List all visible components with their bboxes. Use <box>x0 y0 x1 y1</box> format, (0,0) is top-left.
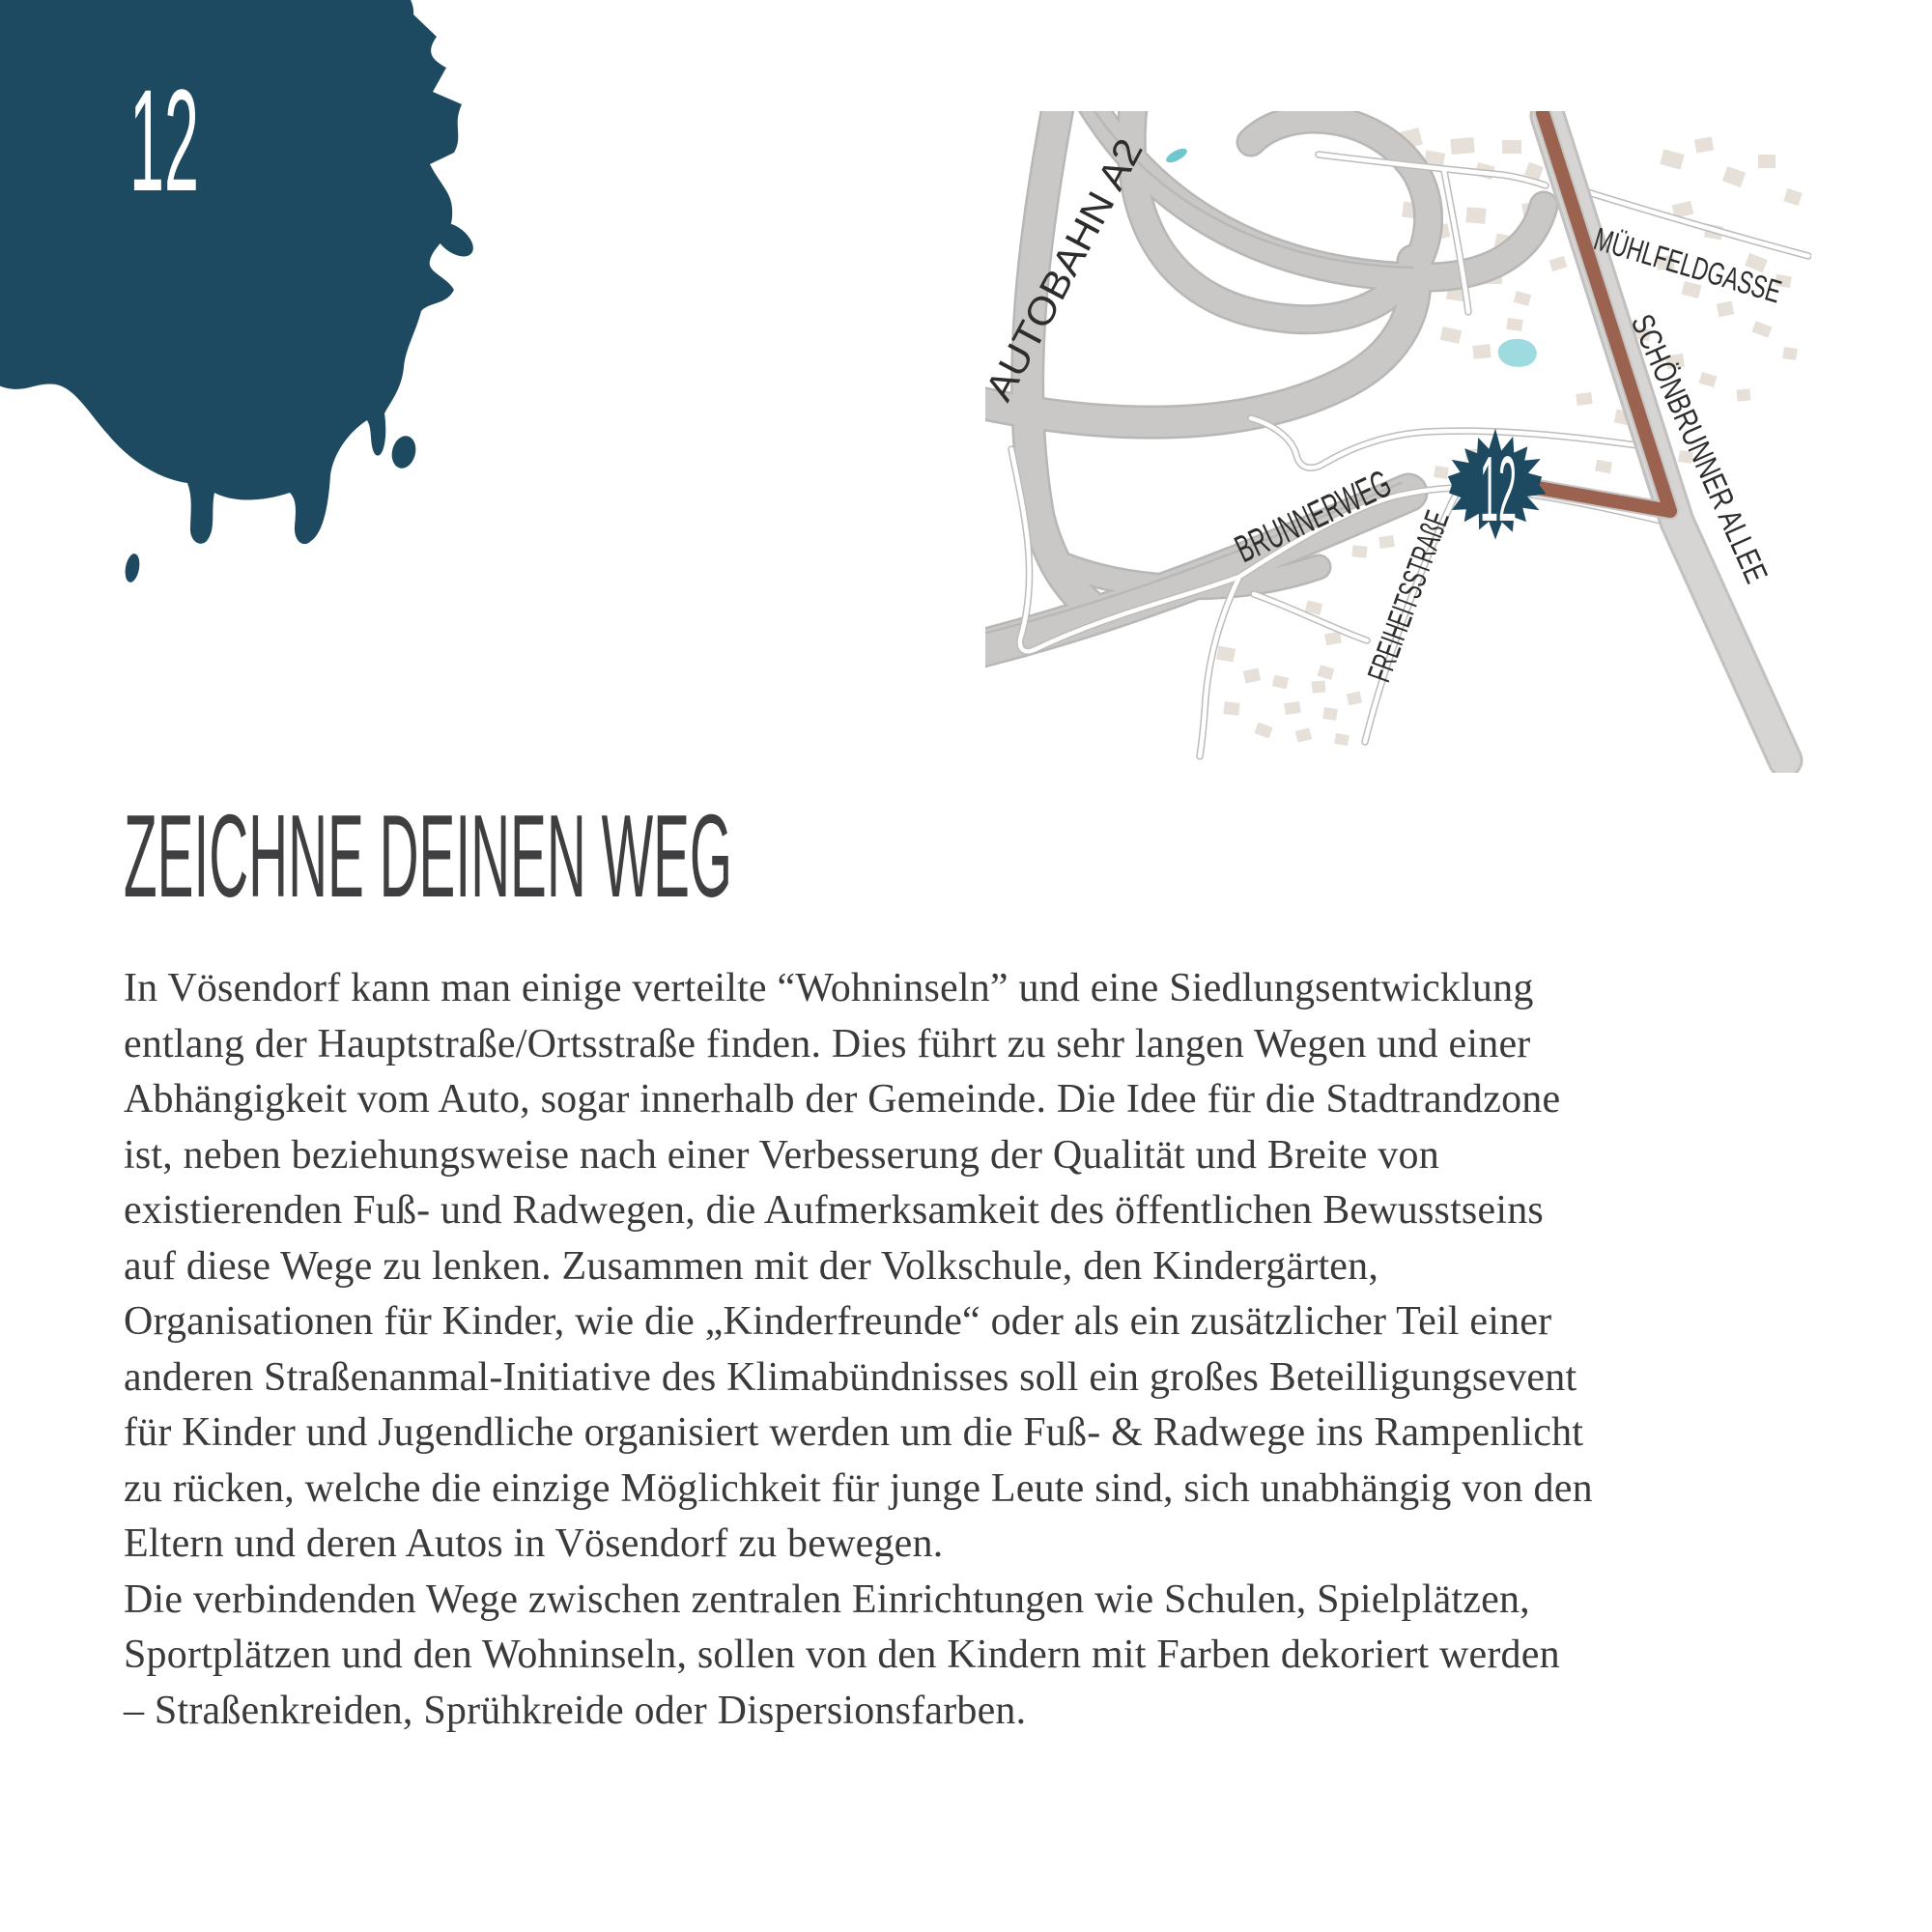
map-building <box>1595 460 1612 474</box>
page-number: 12 <box>129 59 199 221</box>
map-building <box>1502 140 1521 154</box>
map-marker: 12 <box>1448 429 1547 542</box>
map-building <box>1660 149 1684 169</box>
ink-drop-3 <box>388 434 419 471</box>
ink-drop-4 <box>124 553 142 583</box>
ink-splat-shape <box>0 0 462 544</box>
map-building <box>1295 727 1313 742</box>
map-building <box>1272 675 1289 690</box>
map-building <box>1434 466 1449 479</box>
map-building <box>1284 701 1301 715</box>
map-building <box>1717 300 1735 317</box>
map-building <box>1312 680 1326 693</box>
map-building <box>1318 665 1335 680</box>
autobahn-interchange <box>985 111 1544 652</box>
road-label-freiheitsstrasse: FREIHEITSSTRAßE <box>1361 506 1457 687</box>
brochure-page: { "page": { "number": "12", "heading": "… <box>0 0 1932 1932</box>
map-building <box>1737 388 1751 401</box>
map-building <box>1699 372 1718 387</box>
map-building <box>1465 207 1486 224</box>
body-text: In Vösendorf kann man einige verteilte “… <box>124 961 1853 1739</box>
map-building <box>1450 137 1474 155</box>
map-building <box>1514 291 1532 306</box>
map-building <box>1576 392 1593 406</box>
map-building <box>1694 137 1714 154</box>
pond <box>1498 339 1537 367</box>
map-building <box>1254 723 1272 739</box>
map-building <box>1216 646 1236 663</box>
map-building <box>1783 188 1803 206</box>
map-building <box>1351 545 1367 558</box>
map-building <box>1334 733 1350 746</box>
map-building <box>1243 668 1261 683</box>
map-building <box>1751 321 1772 337</box>
map-building <box>1378 535 1395 549</box>
map-building <box>1472 344 1491 359</box>
page-number-ink-splat: 12 <box>0 0 618 676</box>
water-sliver <box>1164 146 1189 165</box>
map-building <box>1322 707 1338 721</box>
map-building <box>1722 166 1746 187</box>
location-map: 12 AUTOBAHN A2 MÜHLFELDGASSE SCHÖNBRUNNE… <box>985 111 1811 773</box>
map-building <box>1758 155 1776 168</box>
map-building <box>1506 318 1523 331</box>
map-building <box>1223 701 1239 716</box>
map-building <box>1440 327 1462 344</box>
road-label-autobahn-a2: AUTOBAHN A2 <box>985 132 1151 409</box>
map-building <box>1782 347 1798 360</box>
map-building <box>1549 256 1568 271</box>
marker-number: 12 <box>1480 438 1517 541</box>
map-building <box>1324 632 1342 646</box>
map-building <box>1347 692 1362 706</box>
section-heading-wrap: ZEICHNE DEINEN WEG <box>114 779 810 923</box>
page-title: ZEICHNE DEINEN WEG <box>124 790 732 922</box>
